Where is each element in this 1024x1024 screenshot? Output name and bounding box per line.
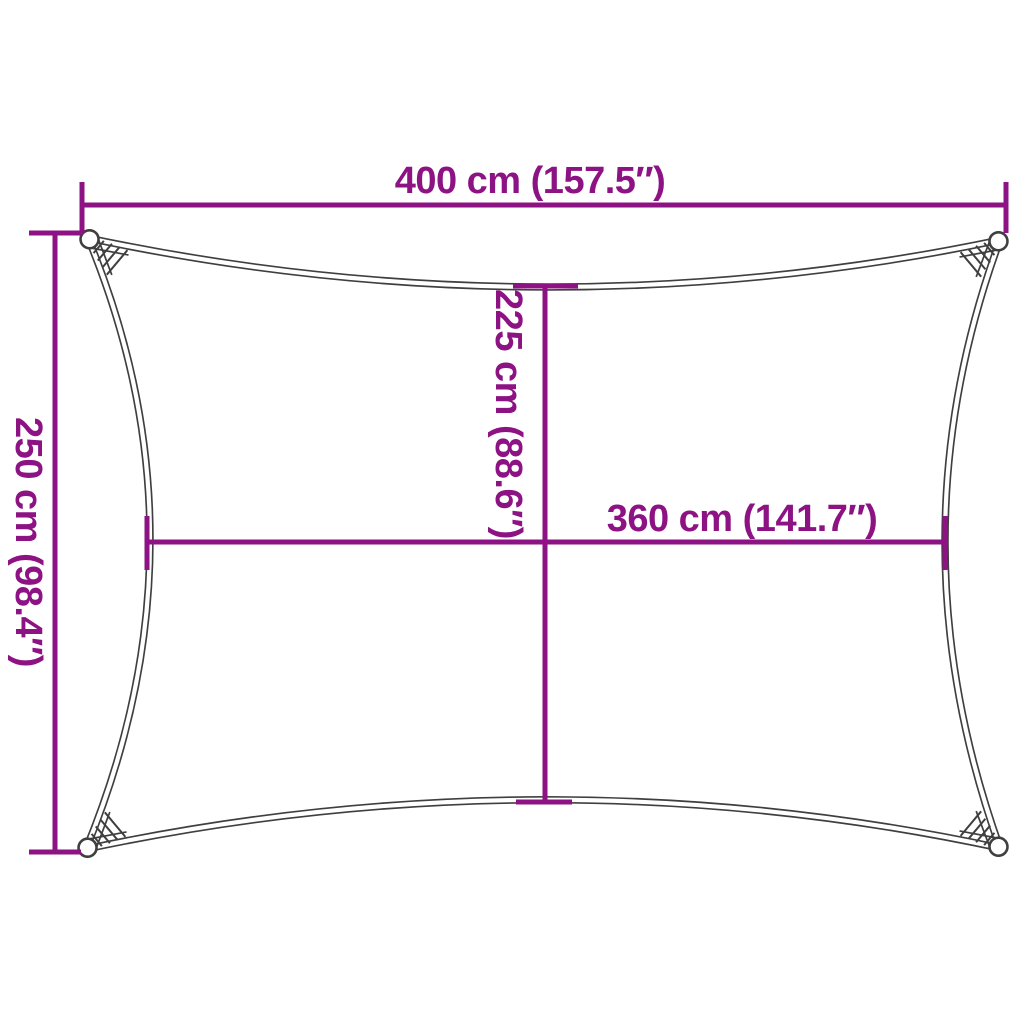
dimension-top-label: 400 cm (157.5″) [395, 160, 666, 202]
dimension-middle-vertical-label: 225 cm (88.6″) [487, 289, 529, 539]
diagram-canvas: 400 cm (157.5″) 250 cm (98.4″) 225 cm (8… [0, 0, 1024, 1024]
dimension-left-label: 250 cm (98.4″) [7, 417, 49, 667]
shade-sail-diagram: 400 cm (157.5″) 250 cm (98.4″) 225 cm (8… [0, 0, 1024, 1024]
dimension-left-height: 250 cm (98.4″) [7, 233, 81, 852]
dimension-top-width: 400 cm (157.5″) [82, 160, 1006, 233]
dimension-middle-horizontal-label: 360 cm (141.7″) [607, 498, 878, 540]
